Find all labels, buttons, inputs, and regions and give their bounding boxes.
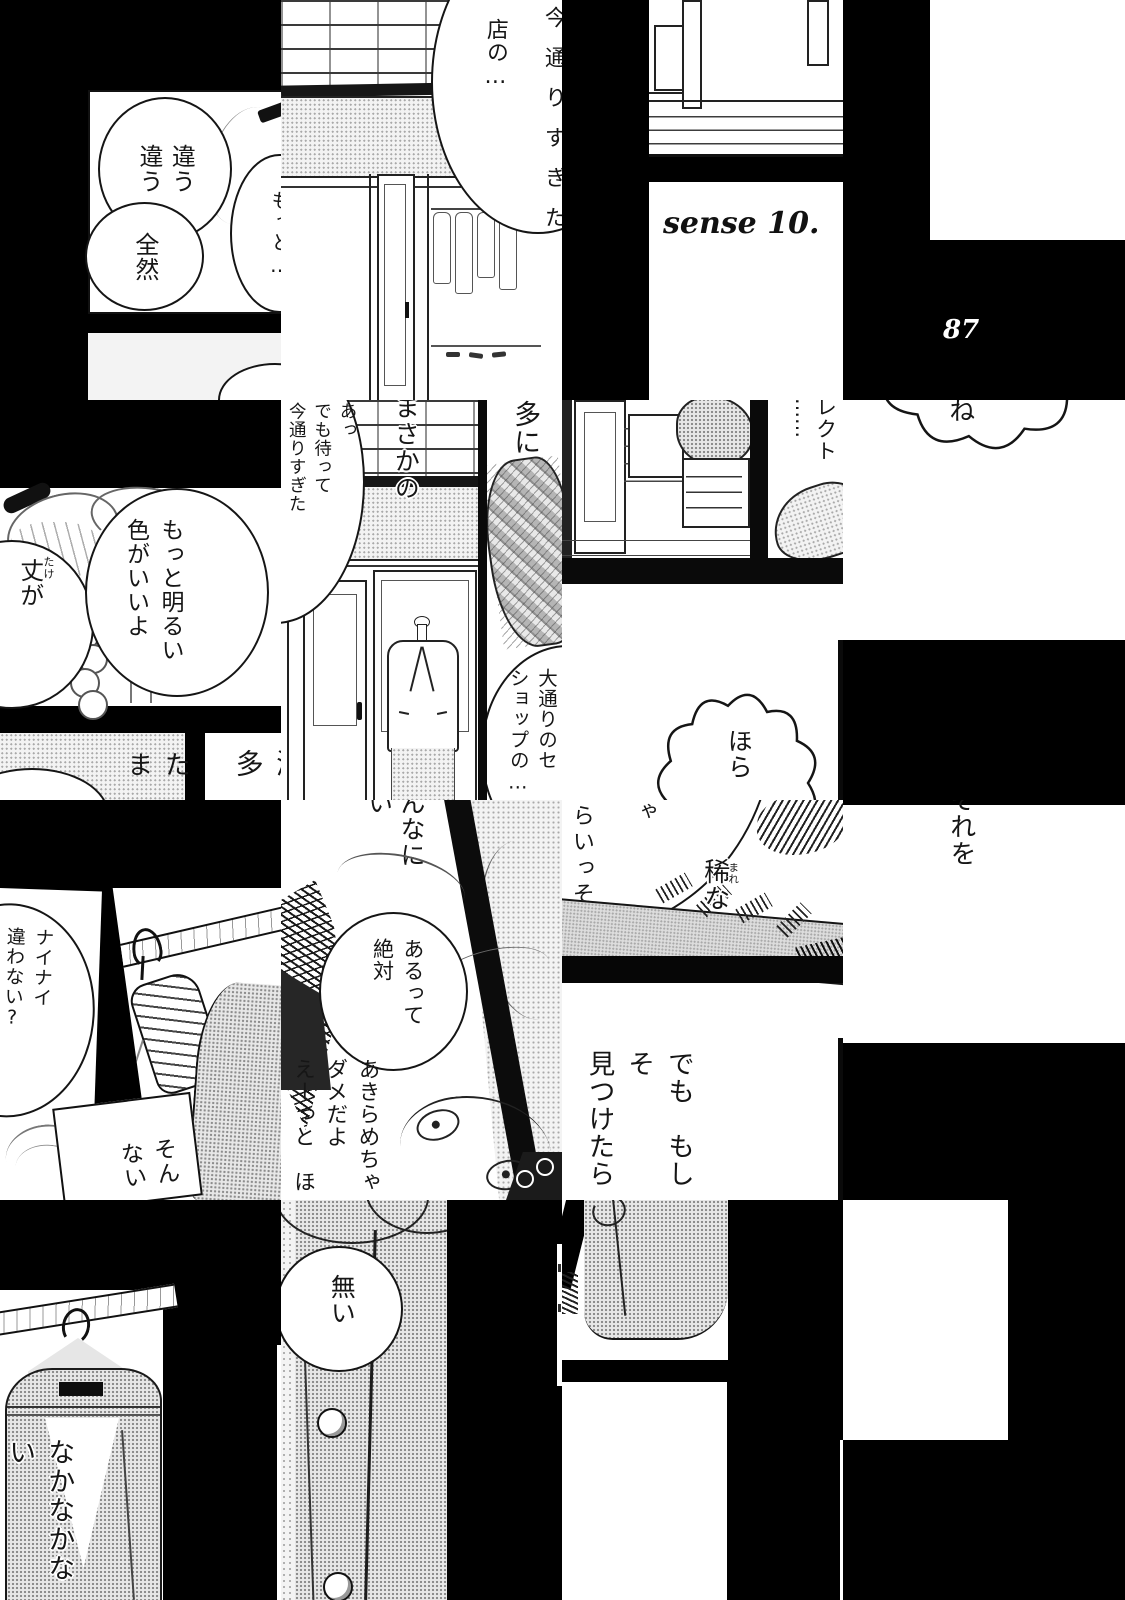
panel-border-strip <box>843 800 1125 805</box>
speech-text-nai: 無い <box>323 1274 359 1326</box>
manga-page: 違う 違う 全然 もっと… <box>0 0 1125 1600</box>
hanger-hook-stem <box>140 956 144 980</box>
panel-gutter-horizontal <box>562 558 843 584</box>
speech-text-rekuto: レクト <box>810 400 840 462</box>
speech-text-mise: 店の… <box>479 18 511 90</box>
bush-foliage <box>676 400 754 466</box>
burst-bubble-ne: ね <box>858 400 1108 515</box>
shirt-button <box>317 1408 347 1438</box>
blank-panel <box>562 1382 727 1600</box>
shoe-shelf-line <box>431 345 541 347</box>
black-region <box>843 1043 1125 1200</box>
tile-a4: 87 <box>843 0 1125 400</box>
speech-text-hora: ほら <box>720 728 756 780</box>
tile-a1: 違う 違う 全然 もっと… <box>0 0 281 400</box>
panel-gutter <box>478 400 487 800</box>
tile-b2: まさかの あっ でも待って 今通りすぎた 多に 大通りのセ ショップの… <box>281 400 562 800</box>
speech-text-chigau: 違う 違う <box>133 144 198 194</box>
door-pillar <box>807 0 829 66</box>
display-window <box>373 570 477 800</box>
speech-text-ne: ね <box>940 400 978 424</box>
shirt-halftone: 無い <box>295 1200 447 1600</box>
furigana-take: たけ <box>40 556 56 580</box>
hatched-knit-texture <box>757 800 843 855</box>
ground-lines <box>562 526 752 560</box>
jacket-lapel-line <box>409 646 422 691</box>
bubble-arc <box>0 768 109 800</box>
blank-panel <box>930 0 1125 240</box>
mannequin-jacket <box>387 640 459 752</box>
sleeve-halftone <box>584 1200 728 1340</box>
speech-text-ima-clipped: 今通りすぎた <box>537 6 562 246</box>
planter-planks <box>686 462 742 520</box>
speech-text-akarui: もっと明るい 色がいいよ <box>118 518 187 662</box>
tile-d3 <box>562 1200 843 1600</box>
door-pillar <box>682 0 702 109</box>
blank-panel <box>843 1200 1008 1440</box>
tile-c3: ゃ らいっそ 稀な まれ でも もしそ 見つけたら <box>562 800 843 1200</box>
speech-text-oodori: 大通りのセ ショップの… <box>503 668 560 795</box>
tile-a2: 店の… 今通りすぎた <box>281 0 562 400</box>
speech-text-son: そん ない <box>111 1136 183 1192</box>
dark-garment-fold <box>257 98 281 124</box>
tile-d4 <box>843 1200 1125 1600</box>
closet-rod <box>104 905 281 971</box>
title-panel: sense 10. <box>649 182 843 400</box>
jacket-pocket-line <box>399 711 409 715</box>
panel-chigau: 違う 違う 全然 もっと… <box>88 90 281 314</box>
speech-text-metta: 滅多 <box>227 749 281 800</box>
speech-text-nakanaka: なかなかない <box>0 1438 78 1600</box>
hatched-fabric-sliver <box>562 1272 578 1314</box>
ground-lines <box>649 104 843 157</box>
baseboard-line <box>649 100 843 102</box>
panel-hanger-jacket: なかなかない <box>0 1290 163 1600</box>
speech-text-zenzen: 全然 <box>127 232 162 282</box>
mannequin-skirt <box>391 748 455 800</box>
speech-bubble-nai: 無い <box>281 1246 403 1372</box>
tile-c4: それを <box>843 800 1125 1200</box>
speech-text-raiisso: らいっそ <box>565 804 597 908</box>
panel-tama: たま <box>0 733 185 800</box>
shop-door <box>303 580 367 800</box>
paisley-dot <box>431 1120 441 1130</box>
tile-b1: 丈が たけ もっと明るい 色がいいよ たま 滅多 <box>0 400 281 800</box>
tile-b3: …… レクト ほら <box>562 400 843 800</box>
shoe-sketch <box>492 351 506 357</box>
bubble-arc <box>218 363 281 400</box>
shoe-sketch <box>469 352 484 359</box>
speech-text-demo: でも もしそ 見つけたら <box>618 1050 698 1200</box>
burst-bubble-hora: ほら <box>650 688 825 800</box>
tile-a3: sense 10. <box>562 0 843 400</box>
sketch-tick <box>558 1304 561 1312</box>
door-handle <box>405 302 409 318</box>
tile-c2: んなに い あるって 絶対 あきらめちゃ ダメだよ えーっと ほ <box>281 800 562 1200</box>
speech-text-akirame: あきらめちゃ ダメだよ えーっと ほ <box>287 1058 383 1193</box>
fabric-curl <box>536 1158 554 1176</box>
panel-knitwear: 丈が たけ もっと明るい 色がいいよ <box>0 488 281 706</box>
speech-text-atte: あっ でも待って 今通りすぎた <box>283 402 359 592</box>
planter-box <box>682 458 750 528</box>
panel-gutter-horizontal <box>562 956 843 983</box>
doorway-panel <box>649 0 843 155</box>
panel-sleeve <box>562 1200 728 1360</box>
jacket-seam-line <box>121 1430 135 1600</box>
page-number: 87 <box>943 315 979 345</box>
speech-text-tama: たま <box>118 751 193 800</box>
hanging-garment <box>477 212 495 278</box>
fabric-curl <box>516 1170 534 1188</box>
shirt-button <box>323 1572 353 1600</box>
awning-edge-line <box>281 186 461 188</box>
cable-knit-loop <box>78 690 108 720</box>
speech-text-ya: ゃ <box>630 800 660 822</box>
door-glass <box>313 594 357 726</box>
halftone-strip-panel <box>88 333 281 400</box>
burst-bubble-ne-shape <box>858 400 1108 515</box>
speech-text-nainai: ナイナイ 違わない? <box>0 926 58 1031</box>
tile-c1: ナイナイ 違わない? そん ない <box>0 800 281 1200</box>
speech-text-sorewo: それを <box>941 800 979 867</box>
shoe-sketch <box>446 352 460 357</box>
caption-masaka: まさかの <box>387 400 423 502</box>
shop-door <box>377 174 415 400</box>
speech-text-tani: 多に <box>505 400 544 456</box>
furigana-mare: まれ <box>725 862 740 885</box>
door-glass <box>384 184 406 386</box>
tile-d1: なかなかない <box>0 1200 281 1600</box>
tile-d2: 無い <box>281 1200 562 1600</box>
scarf-hatch-texture <box>479 455 562 649</box>
jacket-seam-line <box>7 1406 160 1408</box>
panel-gutter <box>750 400 768 560</box>
door-handle <box>357 702 362 720</box>
speech-text-motto: もっと… <box>265 190 281 278</box>
tile-b4: ね <box>843 400 1125 800</box>
panel-son: そん ない <box>52 1092 203 1200</box>
door-frame-line <box>427 174 429 400</box>
hanging-garment <box>455 212 473 294</box>
plaid-scarf <box>476 453 562 652</box>
paisley-dot <box>501 1170 510 1179</box>
panel-metta: 滅多 <box>205 733 281 800</box>
black-region <box>843 640 1125 800</box>
door-jamb <box>369 174 371 400</box>
jacket-label <box>59 1382 103 1396</box>
sketch-tick <box>558 1264 561 1272</box>
hanging-garment <box>433 212 451 284</box>
jacket-seam-line <box>7 1414 160 1416</box>
speech-bubble-zenzen: 全然 <box>85 202 204 311</box>
speech-text-arutte: あるって 絶対 <box>367 938 428 1026</box>
jacket-lapel-line <box>421 646 434 691</box>
chapter-title: sense 10. <box>663 206 819 241</box>
black-region <box>447 1200 562 1600</box>
jacket-pocket-line <box>437 711 447 715</box>
door-glass <box>584 412 616 522</box>
cuff-curl-line <box>588 1200 630 1231</box>
